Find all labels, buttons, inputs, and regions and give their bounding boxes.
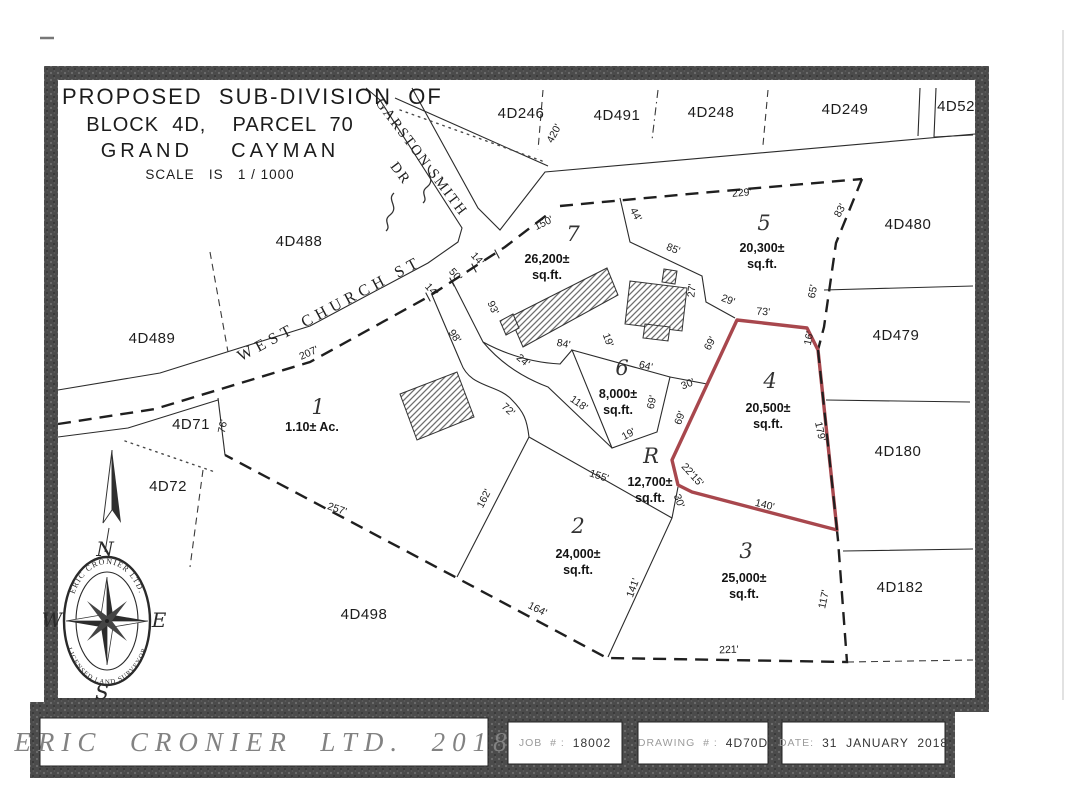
dimension-label: 207' xyxy=(297,344,320,363)
dimension-label: 162' xyxy=(475,487,495,510)
dimension-label: 22'15' xyxy=(679,461,706,489)
lot-number: 3 xyxy=(739,539,752,563)
dimension-label: 85' xyxy=(665,241,682,257)
dimension-label: 65' xyxy=(806,284,820,300)
dash-dot-divider xyxy=(652,90,658,140)
lot-number: 4 xyxy=(762,369,776,393)
dimension-label: 50' xyxy=(446,266,464,284)
footer-job-box: JOB # : 18002 xyxy=(508,722,622,764)
lot-area-units: sq.ft. xyxy=(747,257,777,271)
north-arrow-fill xyxy=(112,450,121,523)
lot-area: 25,000± xyxy=(721,571,766,585)
parcel-label: 4D52 xyxy=(937,98,975,115)
dimension-label: 257' xyxy=(326,500,348,518)
lot-area: 1.10± Ac. xyxy=(285,420,339,434)
drawing-number-value: 4D70D xyxy=(726,736,768,750)
parcel-label: 4D489 xyxy=(129,330,176,347)
dimension-label: 117' xyxy=(816,589,832,610)
dimension-label: 150' xyxy=(532,214,555,233)
parcel-label: 4D491 xyxy=(594,107,641,124)
dimension-label: 76' xyxy=(216,418,231,434)
date-label: DATE: xyxy=(779,737,814,749)
lot-number: 1 xyxy=(311,395,324,419)
dimension-label: 69' xyxy=(702,335,719,353)
dimension-label: 30' xyxy=(671,492,687,509)
dimension-label: 72' xyxy=(499,401,517,419)
job-number-label: JOB # : xyxy=(519,737,565,749)
street-label: DR xyxy=(387,159,414,188)
north-arrow xyxy=(103,450,112,523)
dimension-label: 93' xyxy=(484,299,501,316)
dimension-label: 14' xyxy=(468,250,486,268)
compass-rose: ERIC CRONIER LTD. LICENSED LAND SURVEYOR… xyxy=(42,450,167,704)
dimension-label: 155' xyxy=(588,467,610,484)
parcel-label: 4D480 xyxy=(885,216,932,233)
lot-number: 2 xyxy=(570,514,584,538)
title-line-1: PROPOSED SUB-DIVISION OF xyxy=(62,86,378,108)
parcel-label: 4D182 xyxy=(877,579,924,596)
building-house-chimney xyxy=(662,269,677,284)
building-house-step xyxy=(643,324,670,341)
parcel-label: 4D488 xyxy=(276,233,323,250)
dimension-label: 69' xyxy=(645,394,660,410)
title-scale: SCALE IS 1 / 1000 xyxy=(62,168,378,182)
lot-number: R xyxy=(642,444,659,468)
lot-area-units: sq.ft. xyxy=(729,587,759,601)
dimension-label: 221' xyxy=(719,644,739,657)
dimension-label: 19' xyxy=(600,331,616,348)
street-label: GARSTON SMITH xyxy=(372,96,471,220)
parcel-label: 4D249 xyxy=(822,101,869,118)
street-label: WEST CHURCH ST xyxy=(235,253,425,365)
dimension-label: 14' xyxy=(422,281,440,299)
dimension-label: 98' xyxy=(446,327,464,345)
building-lot1 xyxy=(400,372,474,440)
scanned-survey-plan: ERIC CRONIER LTD. LICENSED LAND SURVEYOR… xyxy=(0,0,1080,799)
lot-area-units: sq.ft. xyxy=(563,563,593,577)
dimension-label: 30' xyxy=(679,376,696,392)
dimension-label: 140' xyxy=(754,497,776,513)
job-number-value: 18002 xyxy=(573,736,611,750)
dimension-label: 141' xyxy=(624,577,642,599)
dimension-label: 118' xyxy=(568,393,590,414)
dimension-label: 73' xyxy=(756,306,770,319)
lot-area-units: sq.ft. xyxy=(603,403,633,417)
title-block: PROPOSED SUB-DIVISION OF BLOCK 4D, PARCE… xyxy=(62,86,378,182)
dimension-label: 44' xyxy=(627,206,644,224)
parcel-label: 4D246 xyxy=(498,105,545,122)
title-line-3: GRAND CAYMAN xyxy=(62,141,378,161)
parcel-label: 4D71 xyxy=(172,416,210,433)
lot-area: 24,000± xyxy=(555,547,600,561)
dimension-label: 29' xyxy=(720,292,737,308)
lot-area: 20,500± xyxy=(745,401,790,415)
dimension-label: 27' xyxy=(685,283,698,298)
drawing-number-label: DRAWING # : xyxy=(638,737,718,749)
dimension-label: 64' xyxy=(638,359,654,374)
dimension-label: 420' xyxy=(544,122,564,145)
parcel-label: 4D479 xyxy=(873,327,920,344)
parcel-label: 4D498 xyxy=(341,606,388,623)
compass-e: E xyxy=(151,608,167,632)
dimension-label: 83' xyxy=(832,202,849,220)
parcel-label: 4D72 xyxy=(149,478,187,495)
lot-area: 12,700± xyxy=(627,475,672,489)
dimension-label: 69' xyxy=(672,409,688,426)
dimension-label: 24' xyxy=(514,352,532,370)
building-house xyxy=(625,281,687,331)
lot-area: 8,000± xyxy=(599,387,637,401)
lot-area: 20,300± xyxy=(739,241,784,255)
compass-w: W xyxy=(42,608,64,632)
dimension-label: 84' xyxy=(556,337,572,351)
lot-number: 6 xyxy=(615,356,628,380)
title-line-2: BLOCK 4D, PARCEL 70 xyxy=(62,115,378,135)
parcel-label: 4D180 xyxy=(875,443,922,460)
lot-area-units: sq.ft. xyxy=(635,491,665,505)
lot-area-units: sq.ft. xyxy=(753,417,783,431)
date-value: 31 JANUARY 2018 xyxy=(822,736,948,750)
lot-number: 5 xyxy=(757,211,770,235)
footer-company: ERIC CRONIER LTD. 2018 xyxy=(40,718,488,766)
lot-number: 7 xyxy=(566,222,580,246)
lot-area: 26,200± xyxy=(524,252,569,266)
footer-date-box: DATE: 31 JANUARY 2018 xyxy=(782,722,945,764)
dimension-label: 229' xyxy=(731,186,752,200)
compass-s: S xyxy=(95,680,109,704)
lot-area-units: sq.ft. xyxy=(532,268,562,282)
compass-n: N xyxy=(95,537,115,561)
parcel-label: 4D248 xyxy=(688,104,735,121)
hatched-buildings xyxy=(400,268,687,440)
footer-drawing-box: DRAWING # : 4D70D xyxy=(638,722,768,764)
dimension-label: 179' xyxy=(812,421,828,443)
